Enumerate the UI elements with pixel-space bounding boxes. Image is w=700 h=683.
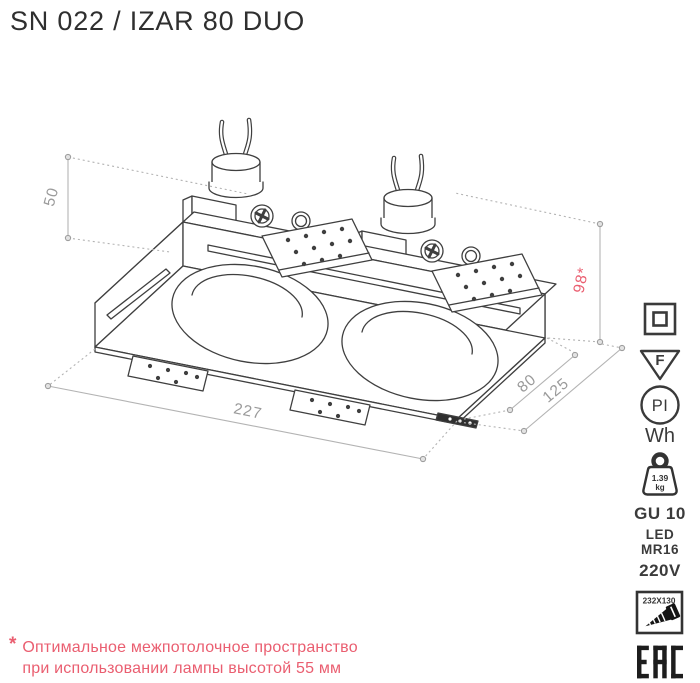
wh-label: Wh xyxy=(620,425,700,448)
fixture-technical-drawing: 50 98* 227 80 125 xyxy=(0,0,700,683)
cutout-size-value: 232X130 xyxy=(643,597,676,606)
footnote-line2: при использовании лампы высотой 55 мм xyxy=(22,658,357,679)
dim-label-227: 227 xyxy=(232,400,264,422)
f-mark-icon: F xyxy=(620,348,700,382)
cutout-size-icon: 232X130 xyxy=(620,589,700,637)
weight-icon: 1.39 kg xyxy=(620,451,700,503)
class-ii-protection-icon xyxy=(620,301,700,337)
footnote: * Оптимальное межпотолочное пространство… xyxy=(9,637,358,679)
svg-text:F: F xyxy=(655,352,664,369)
dim-label-50: 50 xyxy=(41,185,62,208)
lamp-socket-right xyxy=(381,156,435,233)
dim-label-125: 125 xyxy=(540,375,573,407)
dim-label-98: 98* xyxy=(571,265,593,294)
svg-text:PI: PI xyxy=(652,397,669,415)
lamp-socket-left xyxy=(209,120,263,198)
eac-mark xyxy=(620,642,700,682)
weight-unit: kg xyxy=(655,483,664,492)
socket-label: GU 10 xyxy=(620,504,700,524)
dim-label-80: 80 xyxy=(514,371,540,396)
pi-mark-icon: PI xyxy=(620,384,700,426)
footnote-asterisk: * xyxy=(9,637,16,679)
footnote-line1: Оптимальное межпотолочное пространство xyxy=(22,637,357,658)
spec-column: F PI Wh 1.39 kg GU 10 LED MR16 220V 232X… xyxy=(620,295,700,683)
lamp-type-label: LED MR16 xyxy=(620,527,700,557)
weight-value: 1.39 xyxy=(652,473,669,483)
voltage-label: 220V xyxy=(620,561,700,581)
